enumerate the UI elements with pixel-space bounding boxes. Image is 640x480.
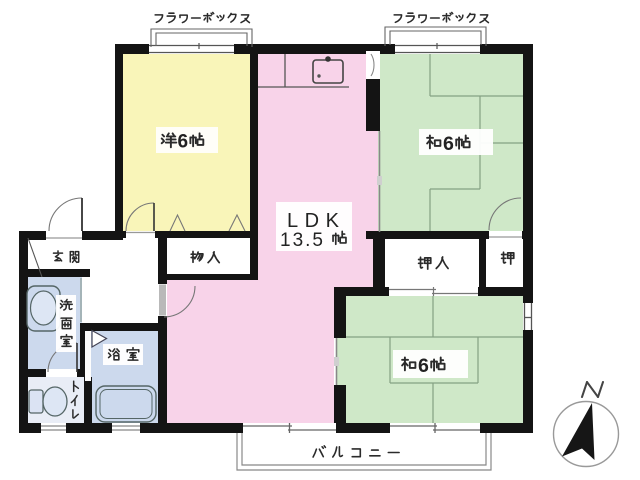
- svg-text:LDK: LDK: [287, 210, 345, 232]
- svg-text:13.5: 13.5: [280, 230, 325, 251]
- svg-text:6: 6: [178, 131, 189, 152]
- svg-text:6: 6: [443, 133, 454, 155]
- svg-text:6: 6: [418, 355, 429, 377]
